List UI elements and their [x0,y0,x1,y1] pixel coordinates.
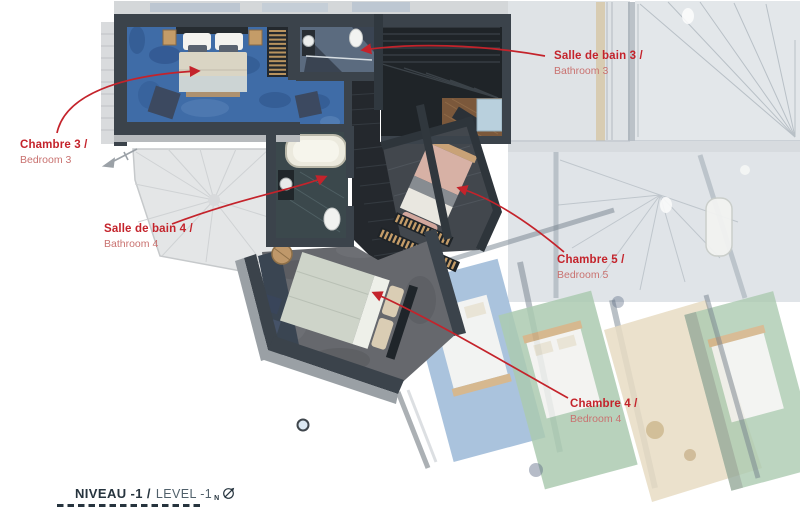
callout-chambre-4: Chambre 4 / Bedroom 4 [570,397,637,427]
entry-arrow-icon [104,149,137,167]
callout-chambre-3-title: Chambre 3 / [20,138,87,153]
level-indicator: NIVEAU -1 / LEVEL -1 N [75,485,235,503]
callout-chambre-5-subtitle: Bedroom 5 [557,269,624,283]
callout-salle-de-bain-3: Salle de bain 3 / Bathroom 3 [554,49,643,79]
callout-salle-de-bain-4-subtitle: Bathroom 4 [104,238,193,252]
column-marker [298,420,309,431]
callout-chambre-3-subtitle: Bedroom 3 [20,154,87,168]
bathroom-4-room [276,132,348,240]
callout-salle-de-bain-4-title: Salle de bain 4 / [104,222,193,237]
north-letter: N [214,495,219,502]
callout-chambre-4-title: Chambre 4 / [570,397,637,412]
level-label-en: LEVEL -1 [156,487,212,501]
callout-chambre-5: Chambre 5 / Bedroom 5 [557,253,624,283]
floorplan-page: Chambre 3 / Bedroom 3 Salle de bain 3 / … [0,0,800,516]
north-arrow-icon [222,487,235,505]
terrace-deck [104,149,287,272]
footer-dashed-rule [57,504,203,507]
floor-plan-graphic [0,0,800,516]
callout-salle-de-bain-4: Salle de bain 4 / Bathroom 4 [104,222,193,252]
level-label-fr: NIVEAU -1 / [75,486,151,501]
callout-salle-de-bain-3-title: Salle de bain 3 / [554,49,643,64]
callout-chambre-4-subtitle: Bedroom 4 [570,413,637,427]
callout-chambre-5-title: Chambre 5 / [557,253,624,268]
staircase [381,14,502,142]
callout-salle-de-bain-3-subtitle: Bathroom 3 [554,65,643,79]
callout-chambre-3: Chambre 3 / Bedroom 3 [20,138,87,168]
